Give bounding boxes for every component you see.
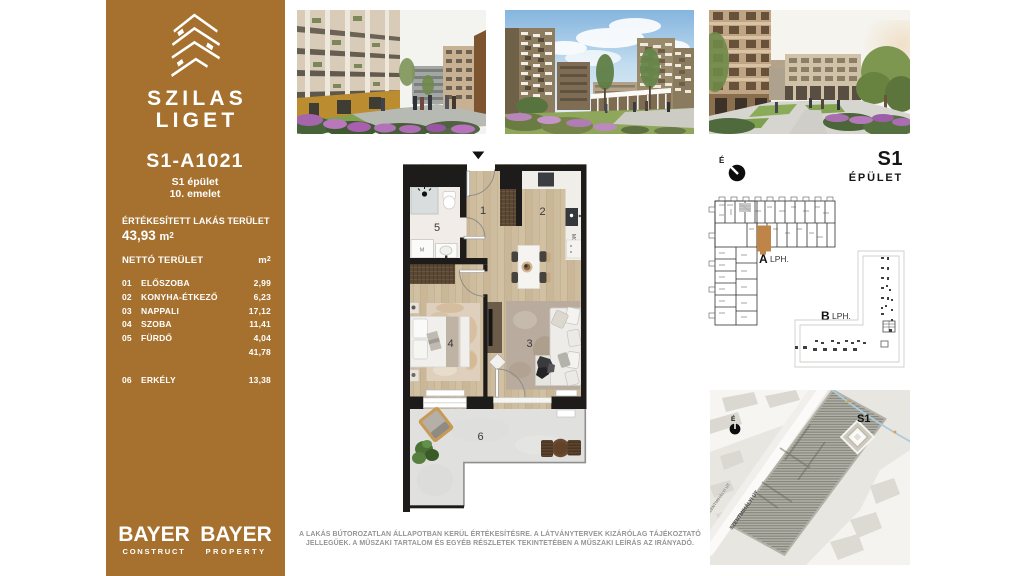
svg-text:LPH.: LPH. xyxy=(832,311,851,321)
svg-text:A: A xyxy=(759,252,768,266)
svg-text:4: 4 xyxy=(447,338,453,350)
svg-text:M: M xyxy=(420,248,425,254)
svg-text:1: 1 xyxy=(480,205,486,217)
svg-text:É: É xyxy=(731,414,736,423)
svg-text:LPH.: LPH. xyxy=(770,254,789,264)
svg-text:S1: S1 xyxy=(857,413,870,425)
svg-text:6: 6 xyxy=(477,431,483,443)
svg-text:B: B xyxy=(821,309,830,323)
svg-text:3: 3 xyxy=(526,338,532,350)
svg-text:É: É xyxy=(719,156,725,165)
svg-text:5: 5 xyxy=(434,222,440,234)
svg-text:2: 2 xyxy=(539,206,545,218)
